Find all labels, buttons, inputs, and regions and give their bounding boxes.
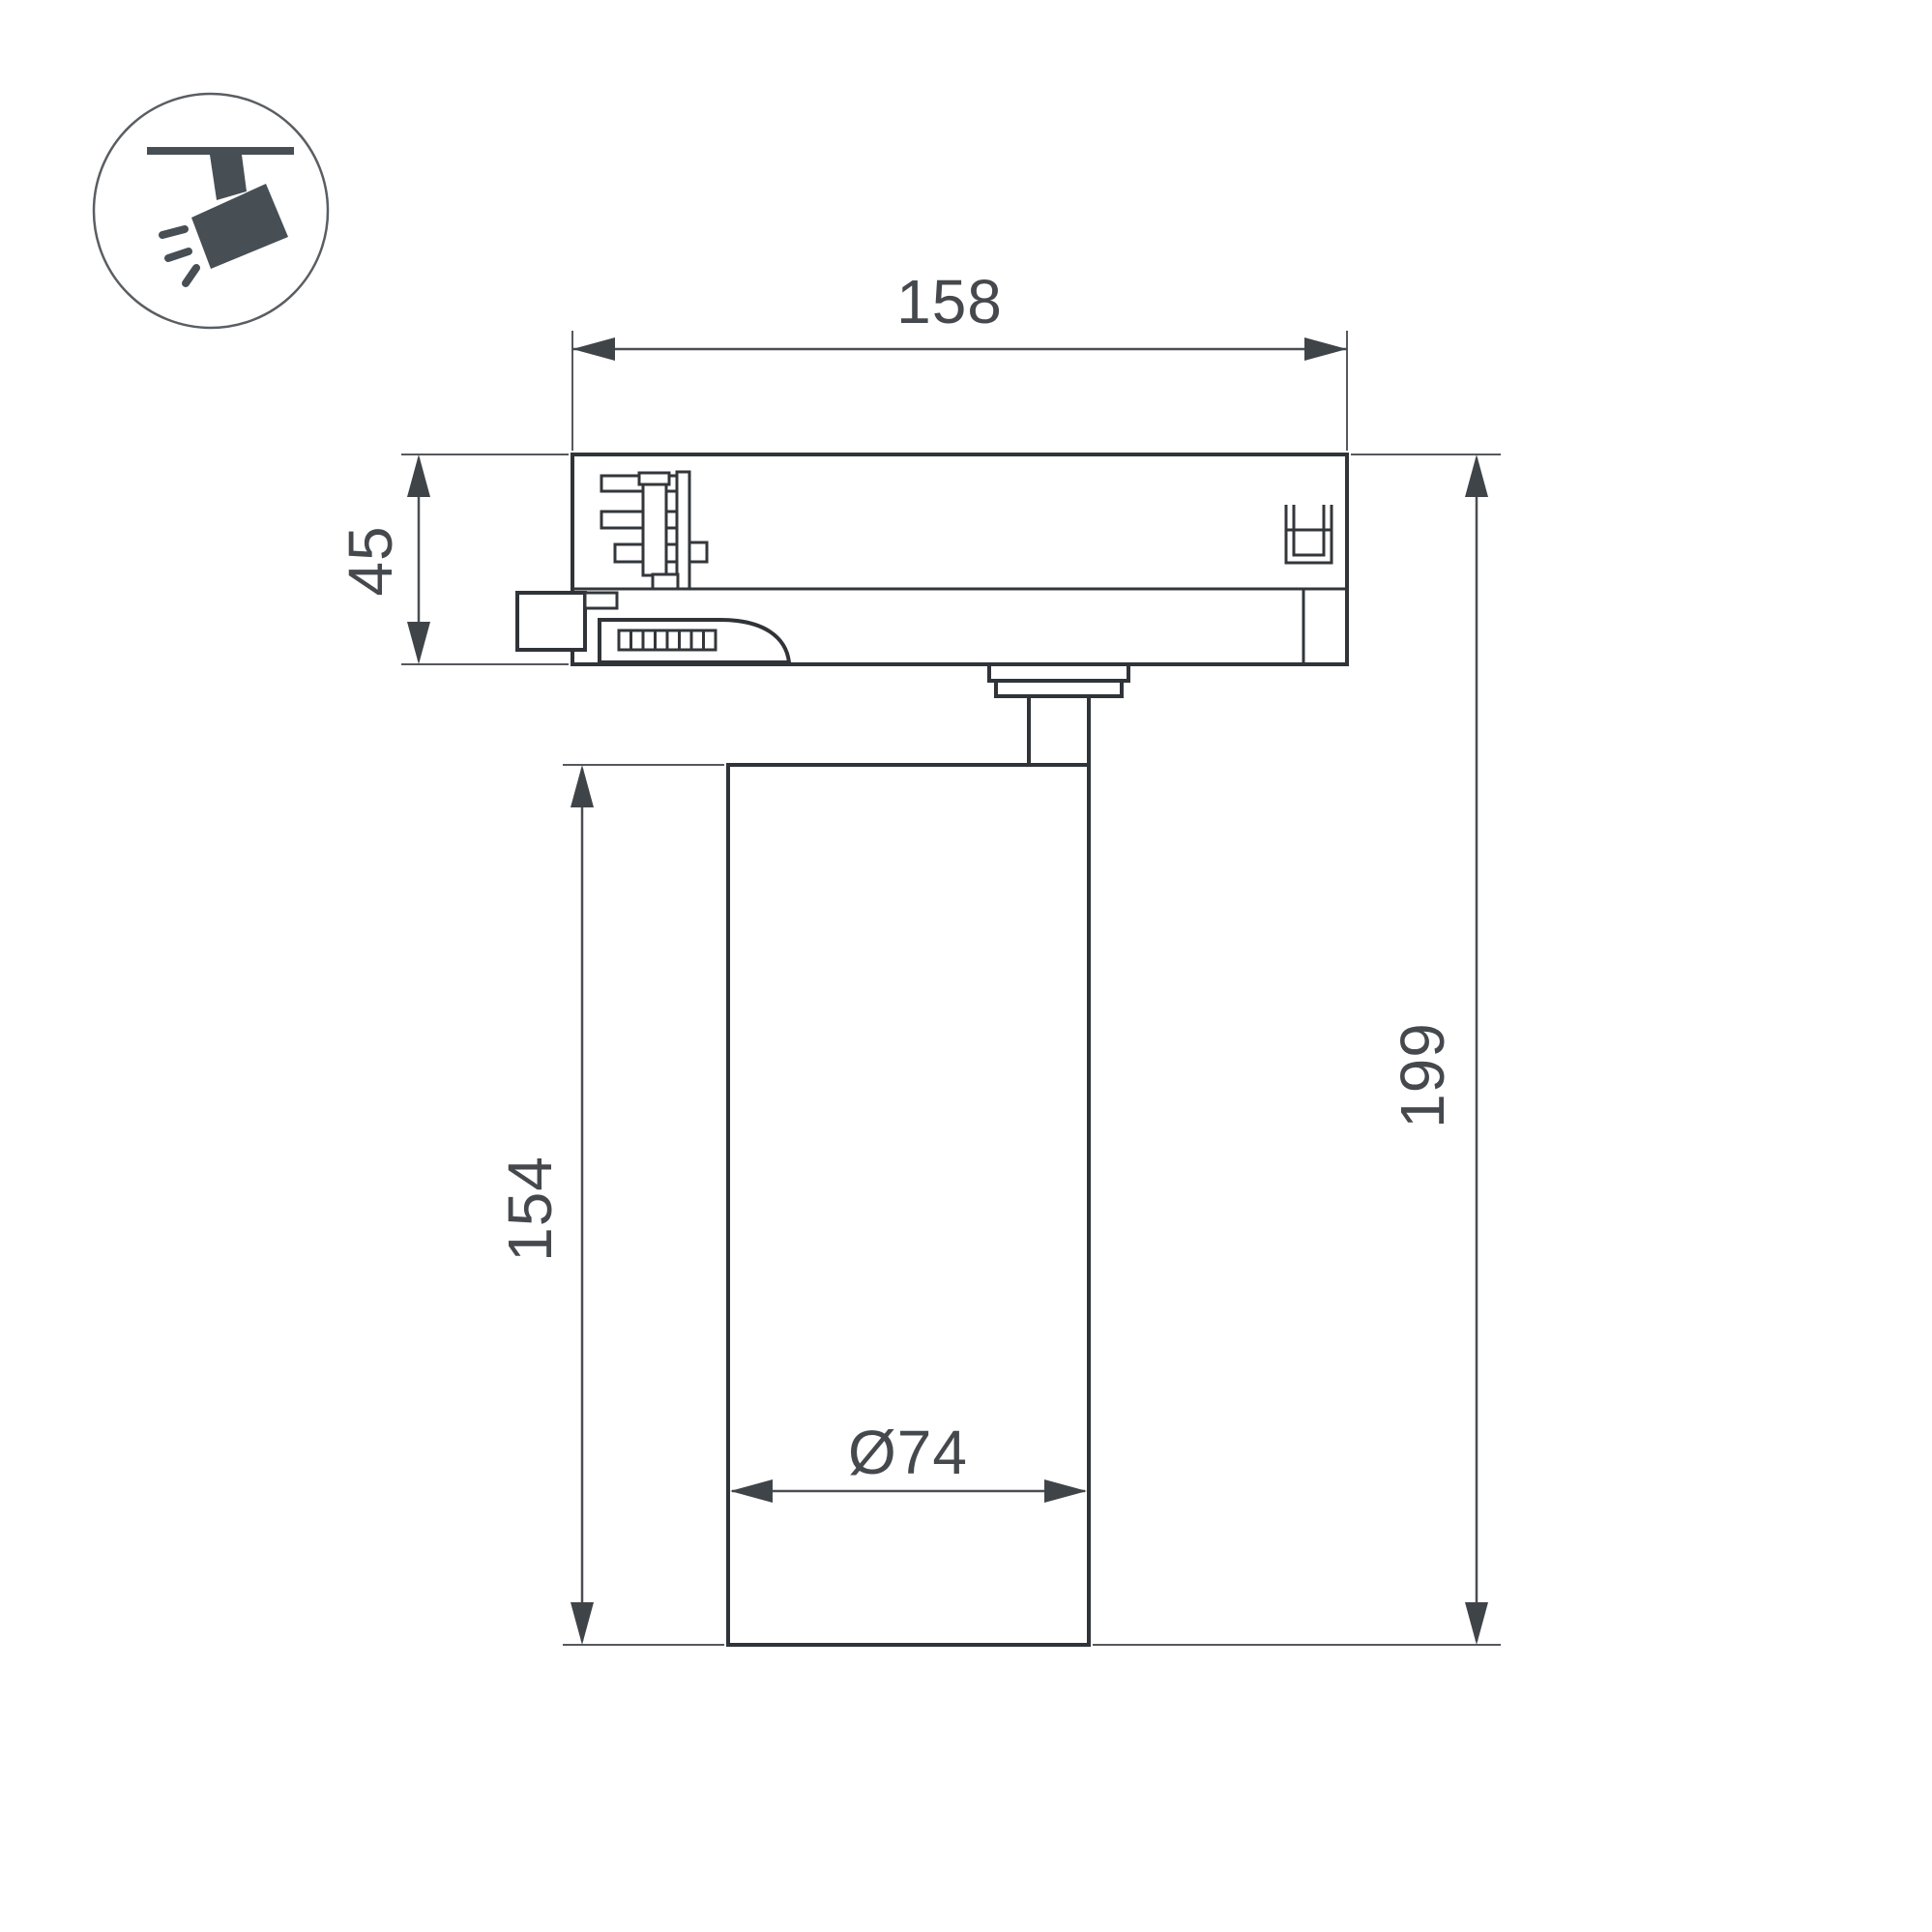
lamp-body xyxy=(728,765,1089,1645)
adapter-release-latch xyxy=(517,593,585,650)
label-body-height: 154 xyxy=(495,1156,565,1262)
mount-plate-upper xyxy=(989,664,1128,681)
adapter-latch-notch xyxy=(585,593,617,608)
adapter-vent-grill xyxy=(619,630,716,650)
icon-track-bar xyxy=(147,147,294,155)
dimension-track-width: 158 xyxy=(572,267,1347,451)
dimension-body-height: 154 xyxy=(495,765,724,1645)
label-total-height: 199 xyxy=(1388,1022,1457,1128)
label-adapter-height: 45 xyxy=(336,525,405,596)
dimension-drawing: 158 45 154 199 Ø74 xyxy=(0,0,1932,1932)
mount-stem xyxy=(989,664,1128,765)
drawing-page: 158 45 154 199 Ø74 xyxy=(0,0,1932,1932)
label-body-diameter: Ø74 xyxy=(848,1418,968,1487)
track-adapter xyxy=(517,454,1347,664)
track-spotlight-icon xyxy=(94,94,328,328)
stem-column xyxy=(1029,696,1089,765)
mount-plate-lower xyxy=(996,681,1122,696)
label-track-width: 158 xyxy=(896,267,1003,337)
